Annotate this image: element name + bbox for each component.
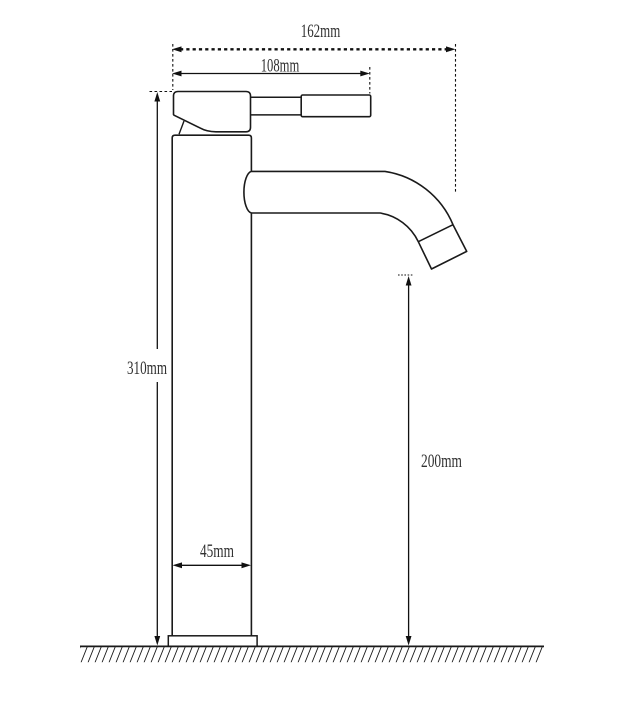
svg-text:162mm: 162mm (301, 21, 341, 42)
svg-text:45mm: 45mm (200, 541, 234, 562)
svg-text:310mm: 310mm (127, 358, 167, 379)
svg-text:200mm: 200mm (421, 451, 462, 472)
